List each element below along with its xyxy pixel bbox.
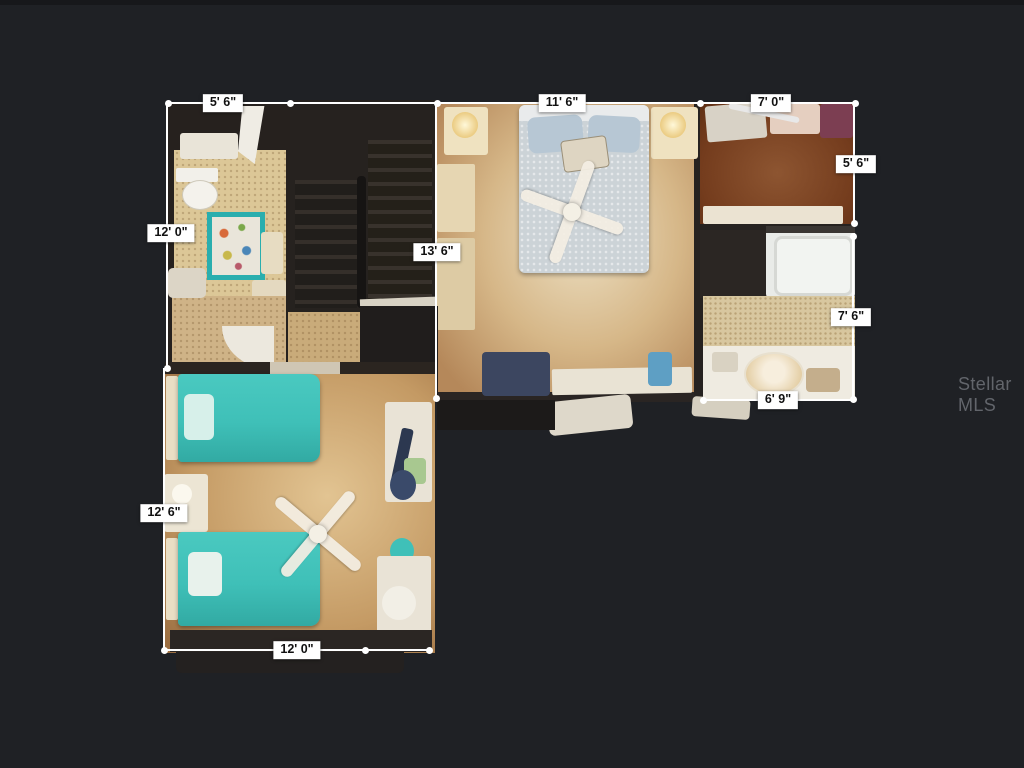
dimension-label-bath2-width: 6' 9" (758, 391, 798, 409)
dimension-dot (850, 396, 857, 403)
bath-rug (207, 212, 265, 280)
floorplan-image: 5' 6" 11' 6" 7' 0" 12' 0" 13' 6" 5' 6" 7… (0, 0, 1024, 768)
dimension-label-bathroom-1-width: 5' 6" (203, 94, 243, 112)
bath-bench (261, 232, 283, 274)
watermark: Stellar MLS (958, 374, 1024, 416)
lamp-left (452, 112, 478, 138)
dimension-dot (700, 397, 707, 404)
dimension-dot (697, 100, 704, 107)
bathroom-2-wall-block (700, 230, 768, 298)
toilet-icon (182, 180, 218, 210)
dimension-dot (287, 100, 294, 107)
desk-1-blue-item (390, 470, 416, 500)
twin-bed-1-pillow (184, 394, 214, 440)
closet-shelf (703, 206, 843, 224)
stair-railing (357, 176, 366, 308)
primary-desk-upper (437, 164, 475, 232)
primary-clutter-dark (482, 352, 550, 396)
dimension-dot (850, 233, 857, 240)
dimension-label-bedroom2-width: 12' 0" (273, 641, 320, 659)
top-border (0, 0, 1024, 5)
vanity-item-left (712, 352, 738, 372)
desk-2-chair (382, 586, 416, 620)
dimension-label-primary-height: 13' 6" (413, 243, 460, 261)
twin-bed-2-pillow (188, 552, 222, 596)
stairs-flight-up (368, 140, 432, 306)
dimension-dot (433, 395, 440, 402)
blue-basket (648, 352, 672, 386)
bathroom-1-vanity (180, 133, 238, 159)
bedroom-2-top-wall-light (270, 362, 340, 374)
lamp-right (660, 112, 686, 138)
bathtub-basin (774, 236, 853, 296)
chair-below-wall (546, 394, 633, 437)
hall-chair (168, 268, 206, 298)
dimension-label-bath2-height: 7' 6" (831, 308, 871, 326)
dimension-dot (164, 365, 171, 372)
twin-bed-1-headboard (166, 376, 178, 460)
dimension-label-closet-width: 7' 0" (751, 94, 791, 112)
dimension-dot (362, 647, 369, 654)
dimension-dot (161, 647, 168, 654)
stairs-flight-down (295, 180, 357, 308)
dimension-dot (426, 647, 433, 654)
wall-mass-below-master (437, 400, 555, 430)
bathtub-edge (766, 226, 855, 233)
dimension-dot (851, 220, 858, 227)
twin-bed-2-headboard (166, 538, 178, 620)
dimension-label-primary-width: 11' 6" (539, 94, 586, 112)
dimension-label-closet-height: 5' 6" (836, 155, 876, 173)
dimension-dot (165, 100, 172, 107)
vanity-basket (806, 368, 840, 392)
dimension-dot (434, 100, 441, 107)
dimension-label-left-height: 12' 0" (147, 224, 194, 242)
bedroom-2-lamp (172, 484, 192, 504)
fan-hub (309, 525, 327, 543)
sink-icon (744, 352, 804, 396)
closet-clutter-3 (820, 104, 853, 138)
dimension-label-bedroom2-height: 12' 6" (140, 504, 187, 522)
dimension-dot (852, 100, 859, 107)
fan-hub (563, 203, 581, 221)
